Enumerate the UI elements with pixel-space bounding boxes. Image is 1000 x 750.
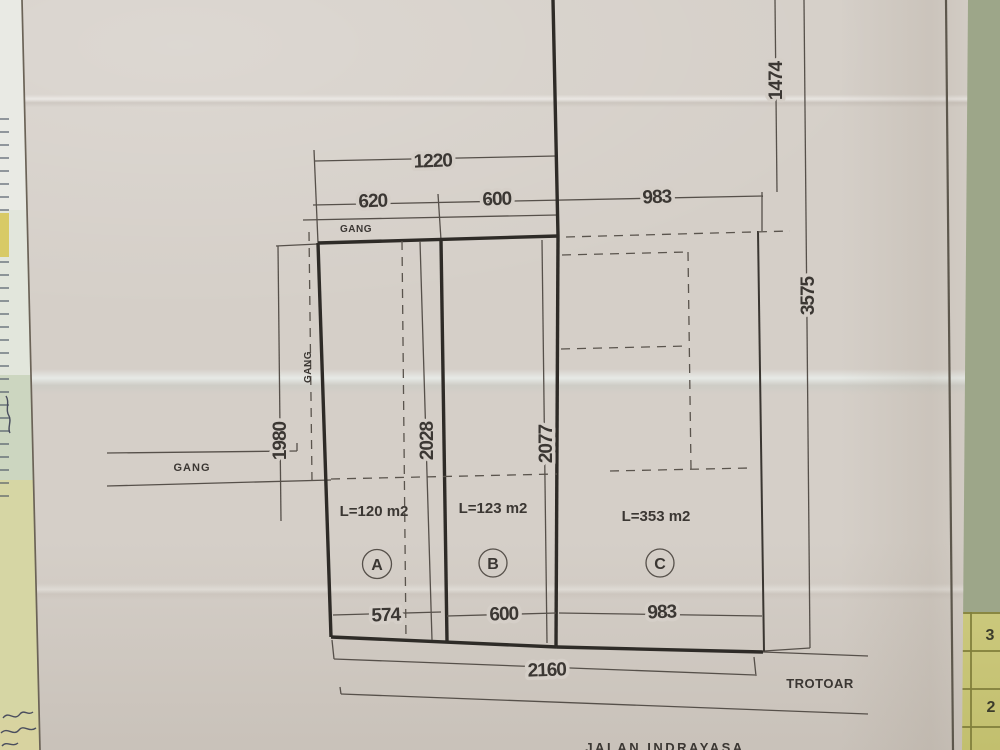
handwriting-scribbles [1, 396, 36, 746]
dim-bottom-a: 574 [371, 604, 402, 626]
dim-top-a: 620 [358, 190, 388, 212]
photo-of-site-plan: 1220 620 600 983 1474 3575 1980 2028 207… [0, 0, 1000, 750]
plot-c-area: L=353 m2 [622, 508, 691, 525]
plot-a-letter: A [371, 557, 383, 574]
plot-b-letter: B [487, 556, 499, 573]
sheet-left-edge [22, 0, 40, 750]
plot-outline [318, 231, 868, 656]
dim-top-c: 983 [642, 186, 672, 208]
dim-bottom-b: 600 [489, 603, 519, 625]
dim-depth-a: 2028 [417, 421, 438, 460]
dim-bottom-c: 983 [647, 601, 677, 623]
plot-b-area: L=123 m2 [459, 500, 528, 517]
label-sidewalk: TROTOAR [786, 676, 854, 691]
label-street: JALAN INDRAYASA [585, 740, 744, 750]
dim-top-total: 1220 [413, 150, 452, 172]
bottom-dimension-lines [332, 612, 868, 714]
site-plan-drawing: 1220 620 600 983 1474 3575 1980 2028 207… [0, 0, 1000, 750]
dim-top-b: 600 [482, 188, 512, 210]
depth-dimension-lines [420, 240, 547, 643]
dim-right-full: 3575 [798, 275, 819, 315]
plot-c-right-boundary [758, 231, 764, 652]
left-alley-lines [107, 232, 331, 521]
label-gang-left: GANG [174, 462, 211, 474]
dim-right-upper: 1474 [766, 60, 787, 100]
plot-circles [363, 549, 675, 579]
grid-paper-digit: 3 [986, 627, 995, 644]
dim-left-side: 1980 [270, 421, 291, 460]
plot-c-letter: C [654, 556, 666, 573]
dim-depth-b: 2077 [536, 424, 557, 463]
sheet-right-border [946, 0, 953, 750]
dashed-setback-lines [331, 231, 790, 640]
dim-bottom-total: 2160 [527, 659, 566, 681]
divider-a-b [441, 240, 447, 641]
label-gang-side: GANG [303, 351, 314, 383]
grid-paper-digit: 2 [987, 699, 996, 716]
label-gang-top: GANG [340, 224, 372, 235]
plot-a-area: L=120 m2 [340, 503, 409, 520]
